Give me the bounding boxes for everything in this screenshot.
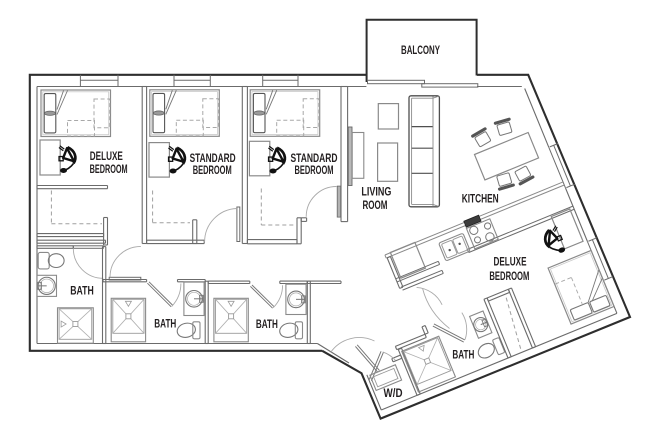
svg-text:BEDROOM: BEDROOM bbox=[193, 163, 232, 177]
svg-text:KITCHEN: KITCHEN bbox=[462, 192, 499, 206]
svg-text:W/D: W/D bbox=[384, 388, 403, 400]
svg-text:BATH: BATH bbox=[256, 319, 278, 331]
svg-text:BATH: BATH bbox=[70, 286, 94, 298]
svg-text:DELUXE: DELUXE bbox=[90, 149, 123, 163]
svg-text:BATH: BATH bbox=[452, 349, 474, 361]
svg-text:BATH: BATH bbox=[154, 318, 176, 330]
svg-text:BEDROOM: BEDROOM bbox=[90, 162, 128, 176]
svg-text:LIVING: LIVING bbox=[361, 185, 391, 199]
svg-text:BEDROOM: BEDROOM bbox=[295, 163, 334, 177]
svg-text:ROOM: ROOM bbox=[363, 198, 388, 212]
svg-text:BALCONY: BALCONY bbox=[401, 44, 440, 57]
svg-text:BEDROOM: BEDROOM bbox=[489, 269, 529, 283]
svg-text:DELUXE: DELUXE bbox=[494, 254, 527, 268]
